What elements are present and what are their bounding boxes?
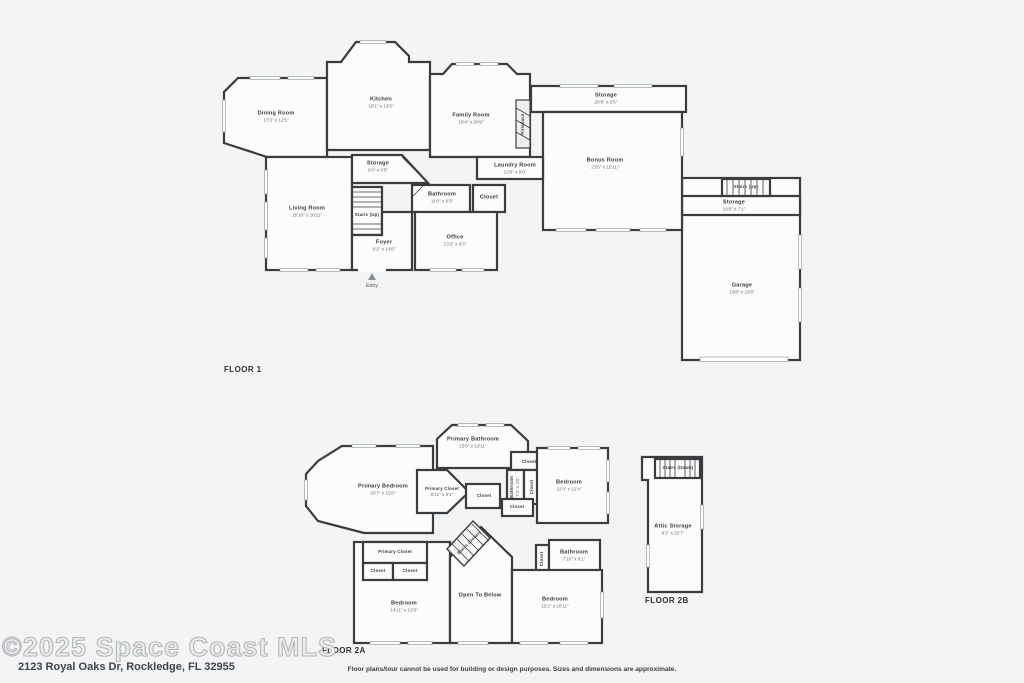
- disclaimer-text: Floor plans/tour cannot be used for buil…: [0, 666, 1024, 673]
- room-closet-b: [393, 563, 427, 580]
- room-closet-center: [466, 484, 500, 508]
- room-storage-top: [531, 86, 686, 112]
- mls-watermark: ©2025 Space Coast MLS: [2, 632, 337, 663]
- room-closet-mid: [502, 499, 533, 516]
- floor2b-title: FLOOR 2B: [645, 596, 689, 605]
- room-bathroom-f1: [412, 185, 470, 212]
- room-storage-mid: [352, 155, 428, 183]
- floor2a-walls: [306, 425, 608, 643]
- room-primary-closet: [417, 470, 469, 513]
- room-closet-bath: [536, 545, 549, 573]
- floor1-walls: [224, 42, 800, 360]
- entry-label: Entry: [366, 283, 378, 289]
- room-bonus: [543, 112, 682, 230]
- entry-arrow-icon: [368, 273, 376, 280]
- room-kitchen: [327, 42, 430, 150]
- room-bedroom-bottom: [512, 570, 602, 643]
- stairs-2b: [655, 459, 700, 478]
- room-office: [415, 212, 497, 270]
- room-living: [266, 157, 352, 270]
- room-primary-bedroom: [306, 446, 433, 533]
- room-closet-a: [363, 563, 393, 580]
- room-family: [430, 64, 530, 157]
- floorplan-page: Dining Room 17'3" x 12'5" Kitchen 18'1" …: [0, 0, 1024, 683]
- floorplan-drawing: [0, 0, 1024, 683]
- room-closet-f1: [473, 185, 505, 212]
- room-dining: [224, 78, 327, 157]
- room-storage-garage: [682, 196, 800, 215]
- room-bedroom-right: [537, 448, 608, 523]
- room-laundry: [477, 157, 543, 179]
- floor2b-walls: [642, 457, 702, 592]
- stairs-main: [352, 187, 382, 235]
- room-primary-closet2: [363, 542, 427, 563]
- floor1-title: FLOOR 1: [224, 365, 261, 374]
